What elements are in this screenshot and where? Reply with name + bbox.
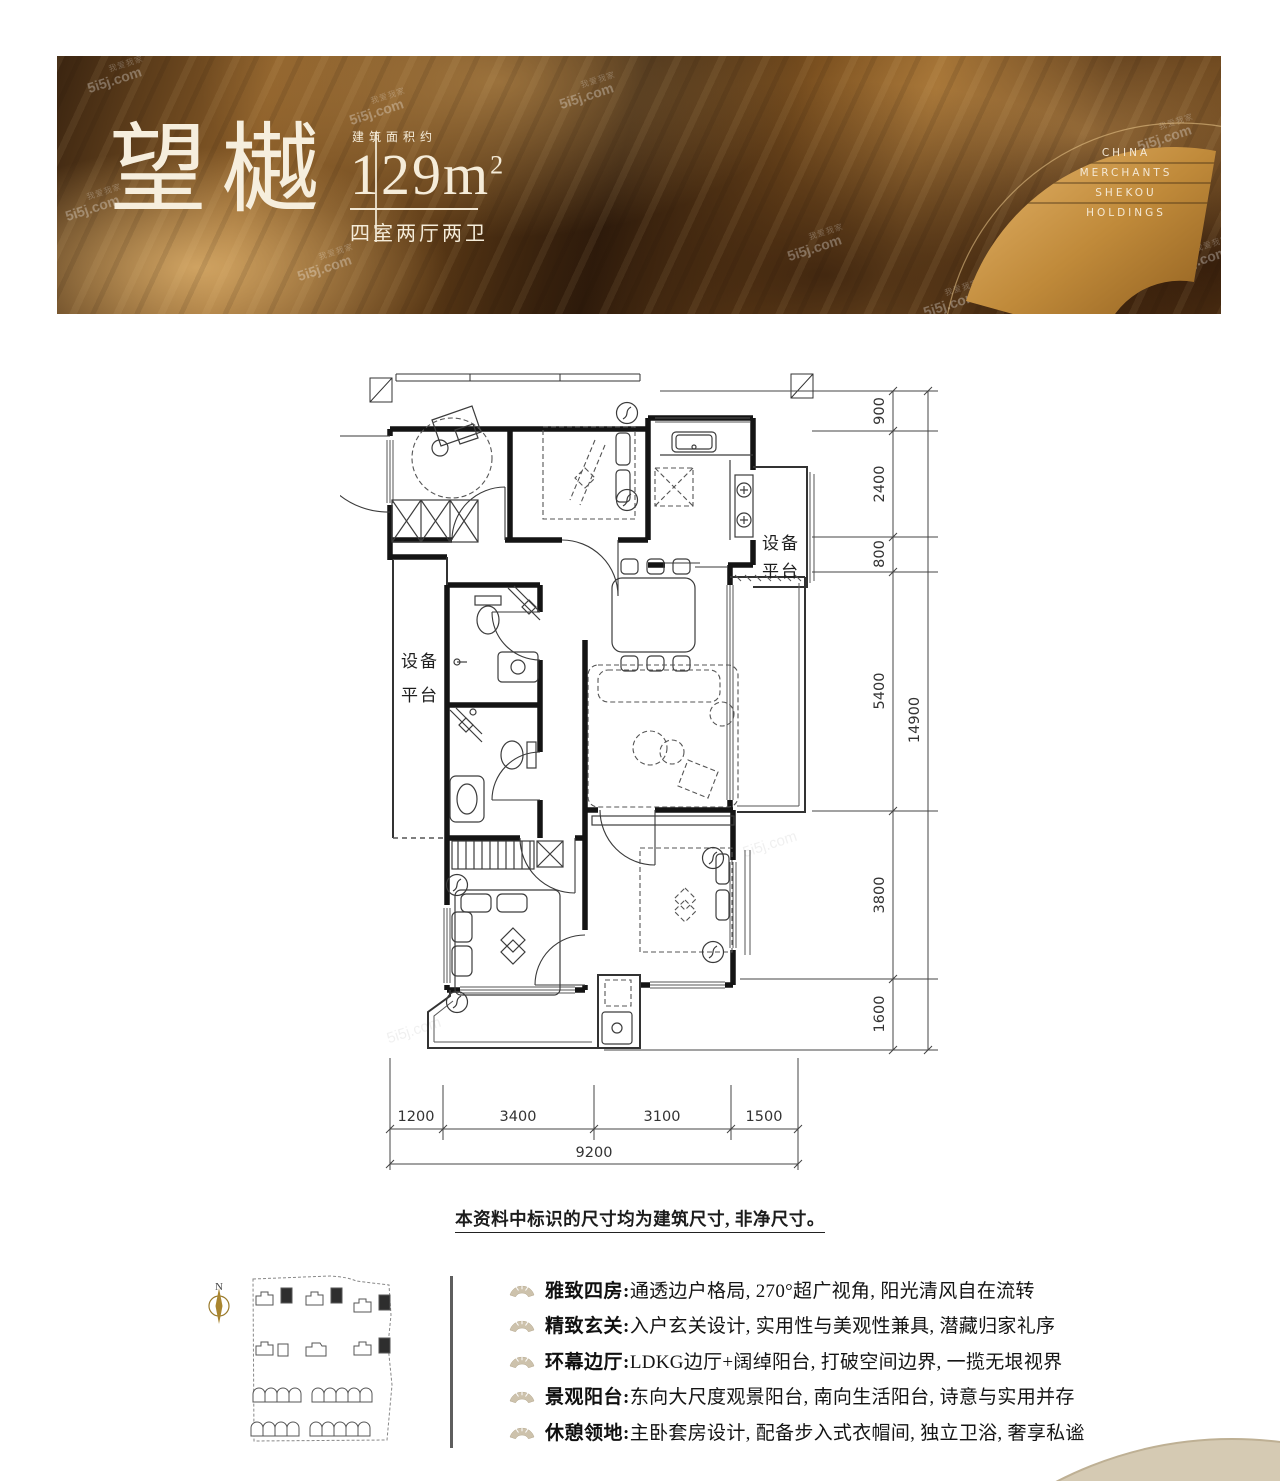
dim-bottom: 3100 (644, 1109, 681, 1125)
feature-label: 景观阳台: (545, 1382, 630, 1409)
fan-icon (508, 1281, 536, 1298)
kitchen-fixtures (660, 432, 753, 540)
feature-text: LDKG边厅+阔绰阳台, 打破空间边界, 一揽无垠视界 (630, 1347, 1063, 1374)
dim-right: 800 (872, 540, 888, 568)
area-info: 建筑面积约 129m2 四室两厅两卫 (350, 128, 505, 246)
fan-icon (508, 1316, 536, 1333)
dimension-note: 本资料中标识的尺寸均为建筑尺寸, 非净尺寸。 (0, 1206, 1280, 1231)
dining-chairs (621, 559, 690, 671)
site-buildings (251, 1288, 390, 1436)
dim-right: 3800 (872, 877, 888, 914)
compass-needle (216, 1288, 223, 1324)
equip-platform-left-label: 平台 (401, 686, 439, 705)
dim-right: 900 (872, 397, 888, 425)
feature-label: 休憩领地: (545, 1418, 630, 1445)
dim-bottom: 1200 (398, 1109, 435, 1125)
dimension-labels: 900 2400 800 5400 3800 1600 14900 1200 3… (398, 397, 923, 1161)
brand-line: CHINA (1102, 147, 1150, 159)
bedroom2-bed (543, 427, 635, 519)
site-plan: N (180, 1255, 470, 1455)
windows (387, 418, 814, 1042)
walls-thick (390, 418, 753, 990)
equip-platform-right-label: 平台 (762, 562, 800, 581)
dimension-note-text: 本资料中标识的尺寸均为建筑尺寸, 非净尺寸。 (455, 1209, 825, 1233)
feature-item: 休憩领地: 主卧套房设计, 配备步入式衣帽间, 独立卫浴, 奢享私谧 (508, 1421, 1085, 1441)
master-wardrobe (452, 841, 563, 869)
feature-list: 雅致四房: 通透边户格局, 270°超广视角, 阳光清风自在流转 精致玄关: 入… (508, 1279, 1085, 1457)
feature-text: 东向大尺度观景阳台, 南向生活阳台, 诗意与实用并存 (630, 1382, 1075, 1409)
door-arcs (340, 436, 728, 985)
laundry-fixtures (602, 1012, 632, 1044)
parapet-lines (370, 374, 813, 402)
layout-text: 四室两厅两卫 (350, 217, 505, 246)
dim-bottom-total: 9200 (576, 1145, 613, 1161)
area-underline (350, 208, 478, 210)
feature-label: 环幕边厅: (545, 1347, 630, 1374)
feature-text: 入户玄关设计, 实用性与美观性兼具, 潜藏归家礼序 (630, 1311, 1056, 1338)
bath2-fixtures (450, 708, 536, 822)
equip-platform-left-label: 设备 (401, 652, 439, 671)
feature-label: 精致玄关: (545, 1311, 630, 1338)
gold-fan-emblem: CHINA MERCHANTS SHEKOU HOLDINGS (881, 56, 1221, 314)
fan-icon (508, 1387, 536, 1404)
feature-text: 通透边户格局, 270°超广视角, 阳光清风自在流转 (630, 1276, 1035, 1303)
dim-bottom: 1500 (746, 1109, 783, 1125)
dim-right: 1600 (872, 996, 888, 1033)
room-labels: 设备 平台 设备 平台 (401, 534, 800, 705)
feature-item: 景观阳台: 东向大尺度观景阳台, 南向生活阳台, 诗意与实用并存 (508, 1386, 1085, 1406)
entry-wardrobe (392, 500, 478, 542)
feature-item: 精致玄关: 入户玄关设计, 实用性与美观性兼具, 潜藏归家礼序 (508, 1315, 1085, 1335)
floor-plan: 设备 平台 设备 平台 900 2400 800 5400 3800 1600 … (340, 355, 1060, 1185)
brand-line: HOLDINGS (1086, 207, 1166, 219)
tv-console (592, 816, 734, 825)
equip-platform-right-label: 设备 (762, 534, 800, 553)
feature-label: 雅致四房: (545, 1276, 630, 1303)
furniture-dashed (412, 418, 738, 1006)
flyer-page: 我爱我家5i5j.com 我爱我家5i5j.com 我爱我家5i5j.com 我… (0, 0, 1280, 1481)
fan-icon (508, 1423, 536, 1440)
sofa-set (588, 665, 738, 807)
dim-right-total: 14900 (907, 697, 923, 743)
laundry-cabinet (605, 980, 631, 1006)
feature-item: 雅致四房: 通透边户格局, 270°超广视角, 阳光清风自在流转 (508, 1279, 1085, 1299)
master-bed (452, 890, 560, 995)
fan-icon (508, 1352, 536, 1369)
dim-right: 5400 (872, 673, 888, 710)
brand-line: SHEKOU (1095, 187, 1156, 199)
dim-right: 2400 (872, 466, 888, 503)
dimension-lines (386, 387, 938, 1170)
feature-text: 主卧套房设计, 配备步入式衣帽间, 独立卫浴, 奢享私谧 (630, 1418, 1085, 1445)
area-value: 129m2 (350, 145, 505, 206)
feature-item: 环幕边厅: LDKG边厅+阔绰阳台, 打破空间边界, 一揽无垠视界 (508, 1350, 1085, 1370)
section-divider (450, 1276, 453, 1448)
brand-line: MERCHANTS (1080, 167, 1173, 179)
dining-table (612, 578, 695, 652)
bedroom3-bed (640, 848, 732, 952)
header-banner: 我爱我家5i5j.com 我爱我家5i5j.com 我爱我家5i5j.com 我… (57, 56, 1221, 314)
dim-bottom: 3400 (500, 1109, 537, 1125)
compass: N (209, 1281, 229, 1324)
plan-title: 望樾 (109, 122, 333, 220)
